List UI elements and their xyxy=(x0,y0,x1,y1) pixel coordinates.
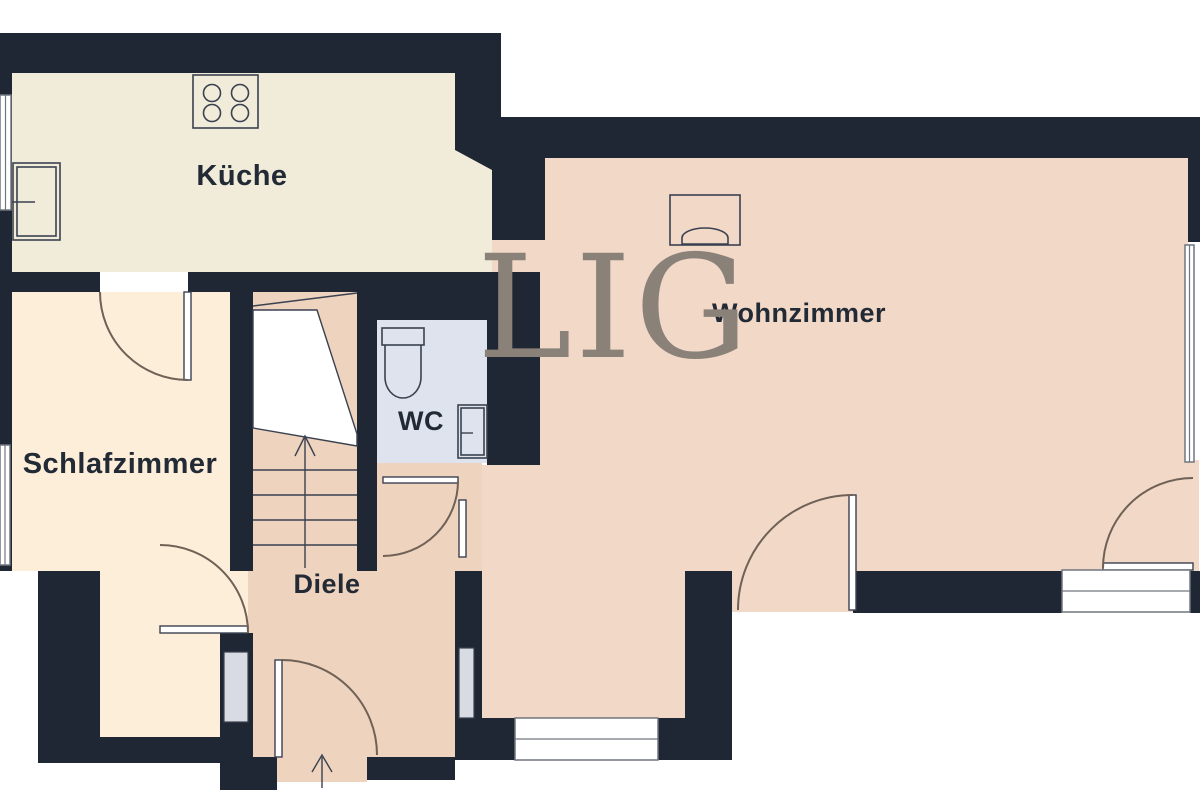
wall-top-wohnzimmer xyxy=(501,117,1200,158)
wall-stair-left xyxy=(230,292,253,571)
door-leaf xyxy=(1103,563,1193,570)
door-leaf xyxy=(383,477,458,483)
door-leaf xyxy=(160,626,248,633)
wall-kueche-schlaf-left xyxy=(0,272,100,292)
wall-entry-left xyxy=(220,757,277,790)
wall-kueche-schlaf-right xyxy=(188,272,377,292)
wall-bottom-right xyxy=(853,571,1062,613)
window-wohnzimmer-right xyxy=(1185,245,1194,462)
room-label-schlafzimmer: Schlafzimmer xyxy=(23,448,218,480)
door-leaf xyxy=(849,495,856,610)
room-label-wc: WC xyxy=(398,406,444,436)
door-leaf xyxy=(275,660,282,757)
wall-bottom-far-right xyxy=(1190,571,1200,613)
door-corridor-lobe-leaf xyxy=(459,648,474,718)
wall-alcove-left xyxy=(38,571,100,737)
watermark-logo: LIG xyxy=(477,224,752,391)
room-label-kueche: Küche xyxy=(196,160,287,192)
window-kueche-left xyxy=(0,95,11,210)
window-schlafzimmer-left xyxy=(0,445,10,565)
door-leaf xyxy=(459,500,466,557)
wall-top-kueche xyxy=(0,33,501,73)
wall-right-upper xyxy=(1188,117,1200,242)
door-alcove-leaf xyxy=(224,652,248,722)
room-label-diele: Diele xyxy=(293,569,360,599)
floor-plan: Küche Schlafzimmer Wohnzimmer WC Diele L… xyxy=(0,0,1200,800)
window-wohnzimmer-bottom-right xyxy=(1062,570,1190,612)
door-leaf xyxy=(184,292,191,380)
floor-wc xyxy=(377,320,487,463)
floor-diele-corridor xyxy=(253,633,455,757)
wall-kueche-wohnzimmer xyxy=(492,117,545,240)
wall-lobe-bottom-right xyxy=(658,718,685,760)
door-diele-wohnzimmer xyxy=(459,500,466,557)
wall-stair-right xyxy=(357,292,377,571)
wall-lobe-bottom-left xyxy=(455,718,515,760)
wall-lobe-right xyxy=(685,571,732,760)
window-wohnzimmer-bottom xyxy=(515,718,658,760)
